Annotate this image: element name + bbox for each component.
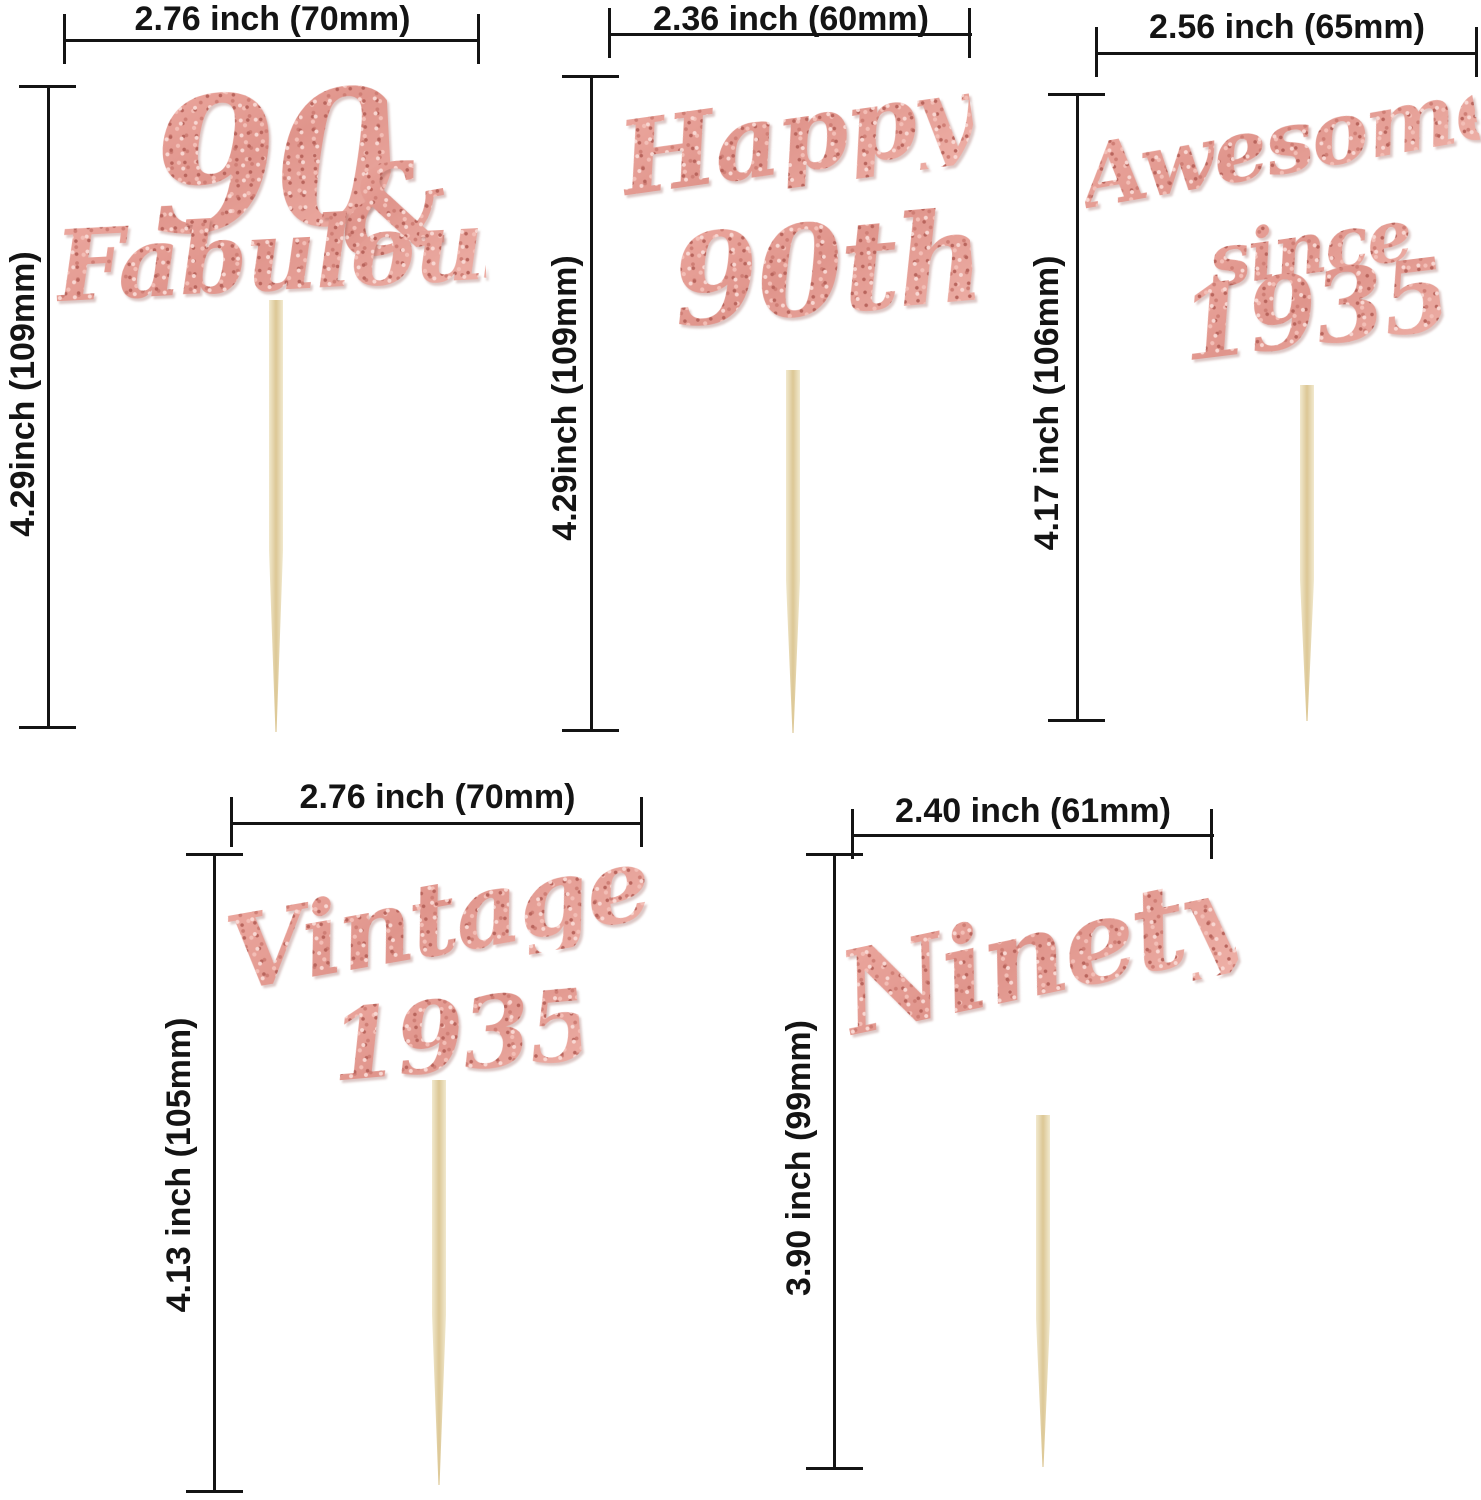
topper-text-ninety: Ninety xyxy=(830,858,1240,1053)
dimension-tick-right xyxy=(1475,27,1478,77)
height-dimension-label: 4.29inch (109mm) xyxy=(4,88,43,700)
dimension-bar-top xyxy=(562,75,619,78)
height-dimension-line xyxy=(1076,95,1079,721)
topper-text-fabulous: Fabulous xyxy=(53,197,488,317)
dimension-tick-left xyxy=(230,797,233,847)
dimension-tick-left xyxy=(608,8,611,58)
width-dimension-line xyxy=(232,822,643,825)
height-dimension-line xyxy=(590,77,593,731)
dimension-bar-top xyxy=(186,853,243,856)
dimension-bar-top xyxy=(1048,93,1105,96)
topper-text-vintage: Vintage xyxy=(216,831,659,1006)
dimension-bar-top xyxy=(19,85,76,88)
dimension-tick-left xyxy=(851,809,854,859)
dimension-bar-bottom xyxy=(806,1467,863,1470)
width-dimension-line xyxy=(610,33,972,36)
height-dimension-label: 4.13 inch (105mm) xyxy=(160,872,199,1458)
topper-group-ninety: 2.40 inch (61mm) 3.90 inch (99mm) Ninety xyxy=(0,0,1481,1500)
height-dimension-line xyxy=(213,855,216,1492)
dimension-bar-bottom xyxy=(19,726,76,729)
dimension-tick-left xyxy=(1095,27,1098,77)
width-dimension-label: 2.36 inch (60mm) xyxy=(610,0,972,39)
topper-group-happy-90th: 2.36 inch (60mm) 4.29inch (109mm) Happy … xyxy=(0,0,1481,1500)
dimension-tick-right xyxy=(640,797,643,847)
toothpick-stick xyxy=(432,1080,446,1485)
dimension-tick-right xyxy=(477,14,480,64)
toothpick-stick xyxy=(1300,385,1314,721)
toothpick-stick xyxy=(1036,1115,1050,1467)
topper-group-vintage-1935: 2.76 inch (70mm) 4.13 inch (105mm) Vinta… xyxy=(0,0,1481,1500)
dimension-tick-right xyxy=(968,8,971,58)
dimension-bar-bottom xyxy=(186,1490,243,1493)
topper-group-awesome-since-1935: 2.56 inch (65mm) 4.17 inch (106mm) Aweso… xyxy=(0,0,1481,1500)
height-dimension-label: 4.17 inch (106mm) xyxy=(1028,104,1067,702)
width-dimension-line xyxy=(1097,52,1478,55)
width-dimension-label: 2.56 inch (65mm) xyxy=(1097,8,1477,47)
height-dimension-label: 3.90 inch (99mm) xyxy=(780,872,819,1444)
topper-group-90-and-fabulous: 2.76 inch (70mm) 4.29inch (109mm) 90 & F… xyxy=(0,0,1481,1500)
width-dimension-line xyxy=(853,834,1214,837)
topper-text-happy: Happy xyxy=(613,61,979,211)
toothpick-stick xyxy=(786,370,800,733)
topper-text-1935: 1935 xyxy=(1175,245,1445,376)
width-dimension-line xyxy=(65,39,480,42)
width-dimension-label: 2.40 inch (61mm) xyxy=(853,792,1213,831)
topper-text-since: since xyxy=(1188,196,1432,300)
dimension-tick-left xyxy=(63,14,66,64)
height-dimension-label: 4.29inch (109mm) xyxy=(546,90,585,706)
topper-text-ampersand: & xyxy=(330,142,455,279)
width-dimension-label: 2.76 inch (70mm) xyxy=(65,0,480,39)
toothpick-stick xyxy=(269,300,283,732)
topper-text-90th: 90th xyxy=(667,195,977,346)
product-dimension-diagram: 2.76 inch (70mm) 4.29inch (109mm) 90 & F… xyxy=(0,0,1481,1500)
dimension-bar-bottom xyxy=(1048,719,1105,722)
topper-text-90: 90 xyxy=(145,64,394,261)
height-dimension-line xyxy=(47,87,50,728)
height-dimension-line xyxy=(833,855,836,1469)
topper-text-1935: 1935 xyxy=(326,977,584,1096)
topper-text-awesome: Awesome xyxy=(1074,68,1481,222)
dimension-bar-top xyxy=(806,853,863,856)
dimension-bar-bottom xyxy=(562,729,619,732)
dimension-tick-right xyxy=(1210,809,1213,859)
width-dimension-label: 2.76 inch (70mm) xyxy=(232,778,643,817)
